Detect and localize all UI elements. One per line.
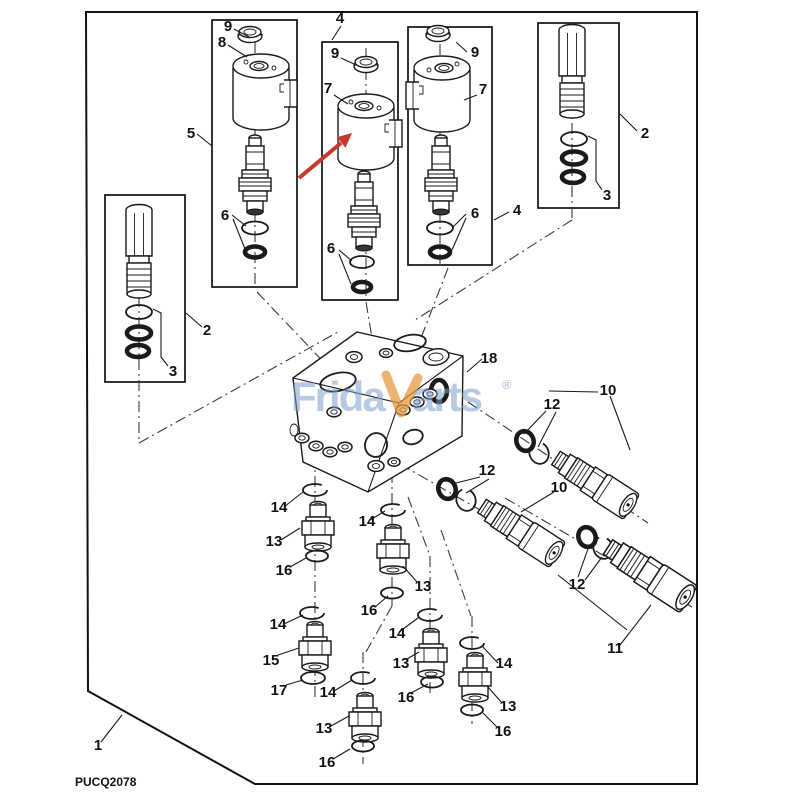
part-11-valve — [599, 534, 699, 615]
part-12-ring-a2 — [526, 439, 551, 466]
watermark-reg-mark: ® — [502, 377, 512, 392]
label-18: 18 — [481, 350, 498, 367]
label-9-right: 9 — [471, 44, 479, 61]
label-16-4: 16 — [319, 754, 336, 771]
part-14-ring-2 — [381, 504, 405, 516]
label-12-a: 12 — [544, 396, 561, 413]
label-13-5: 13 — [500, 698, 517, 715]
label-9-left: 9 — [224, 18, 232, 35]
label-13-3: 13 — [393, 655, 410, 672]
part-6-oring-mid-1 — [350, 256, 374, 268]
label-13-2: 13 — [415, 578, 432, 595]
label-2-right: 2 — [641, 125, 649, 142]
watermark-text-left: Frida — [291, 373, 386, 420]
label-13-1: 13 — [266, 533, 283, 550]
label-14-6: 14 — [496, 655, 513, 672]
label-14-4: 14 — [389, 625, 406, 642]
label-7-middle: 7 — [324, 80, 332, 97]
label-16-3: 16 — [398, 689, 415, 706]
part-6-oring-right-2 — [430, 247, 450, 258]
part-12-ring-c1 — [576, 525, 599, 550]
part-3-ring-left-3 — [127, 345, 149, 357]
label-7-right: 7 — [479, 81, 487, 98]
label-6-left: 6 — [221, 207, 229, 224]
part-7-coil-right — [406, 56, 470, 132]
parts-diagram-page: Frida arts ® — [0, 0, 800, 800]
part-8-coil — [233, 54, 297, 130]
part-3-ring-right-2 — [562, 152, 586, 165]
part-3-ring-right-3 — [562, 171, 584, 183]
part-9-nut-right — [426, 26, 450, 42]
label-4-right: 4 — [513, 202, 522, 219]
part-9-nut-middle — [354, 57, 378, 73]
drawing-code: PUCQ2078 — [75, 775, 137, 789]
label-14-1: 14 — [271, 499, 288, 516]
part-5-cartridge-left — [239, 135, 271, 215]
part-16-ring-1 — [306, 551, 328, 562]
label-3-left: 3 — [169, 363, 177, 380]
label-11: 11 — [607, 640, 623, 657]
label-10-lower: 10 — [551, 479, 568, 496]
watermark-text-right: arts — [412, 373, 482, 420]
part-13-fitting-5 — [459, 653, 491, 703]
label-1: 1 — [94, 737, 102, 754]
label-5: 5 — [187, 125, 195, 142]
part-13-fitting-3 — [415, 629, 447, 679]
part-7-coil-middle — [338, 94, 402, 170]
label-12-c: 12 — [569, 576, 586, 593]
part-13-fitting-1 — [302, 502, 334, 552]
label-16-5: 16 — [495, 723, 512, 740]
label-9-middle: 9 — [331, 45, 339, 62]
part-17-ring — [301, 672, 325, 684]
label-2-left: 2 — [203, 322, 211, 339]
label-16-2: 16 — [361, 602, 378, 619]
part-4-cartridge-middle — [348, 171, 380, 251]
label-13-4: 13 — [316, 720, 333, 737]
label-12-b: 12 — [479, 462, 496, 479]
label-14-3: 14 — [270, 616, 287, 633]
label-15: 15 — [263, 652, 280, 669]
part-2-plug-left — [126, 205, 152, 299]
part-3-ring-right-1 — [561, 132, 587, 146]
part-6-oring-mid-2 — [353, 282, 371, 292]
exploded-parts-diagram: Frida arts ® — [0, 0, 800, 800]
part-15-fitting — [299, 622, 331, 672]
label-14-5: 14 — [320, 684, 337, 701]
part-4-cartridge-right — [425, 135, 457, 215]
part-2-plug-right — [559, 25, 585, 119]
part-13-fitting-4 — [349, 693, 381, 743]
label-6-right: 6 — [471, 205, 479, 222]
label-17: 17 — [271, 682, 288, 699]
label-16-1: 16 — [276, 562, 293, 579]
part-10-valve-lower — [474, 493, 567, 568]
part-9-nut-left — [238, 27, 262, 43]
part-12-ring-b1 — [436, 477, 459, 502]
label-10-upper: 10 — [600, 382, 617, 399]
label-8: 8 — [218, 34, 226, 51]
label-14-2: 14 — [359, 513, 376, 530]
part-14-ring-3 — [300, 607, 324, 619]
label-3-right: 3 — [603, 187, 611, 204]
label-6-middle: 6 — [327, 240, 335, 257]
label-4-top: 4 — [336, 10, 345, 27]
group-box-4-middle — [322, 42, 398, 300]
